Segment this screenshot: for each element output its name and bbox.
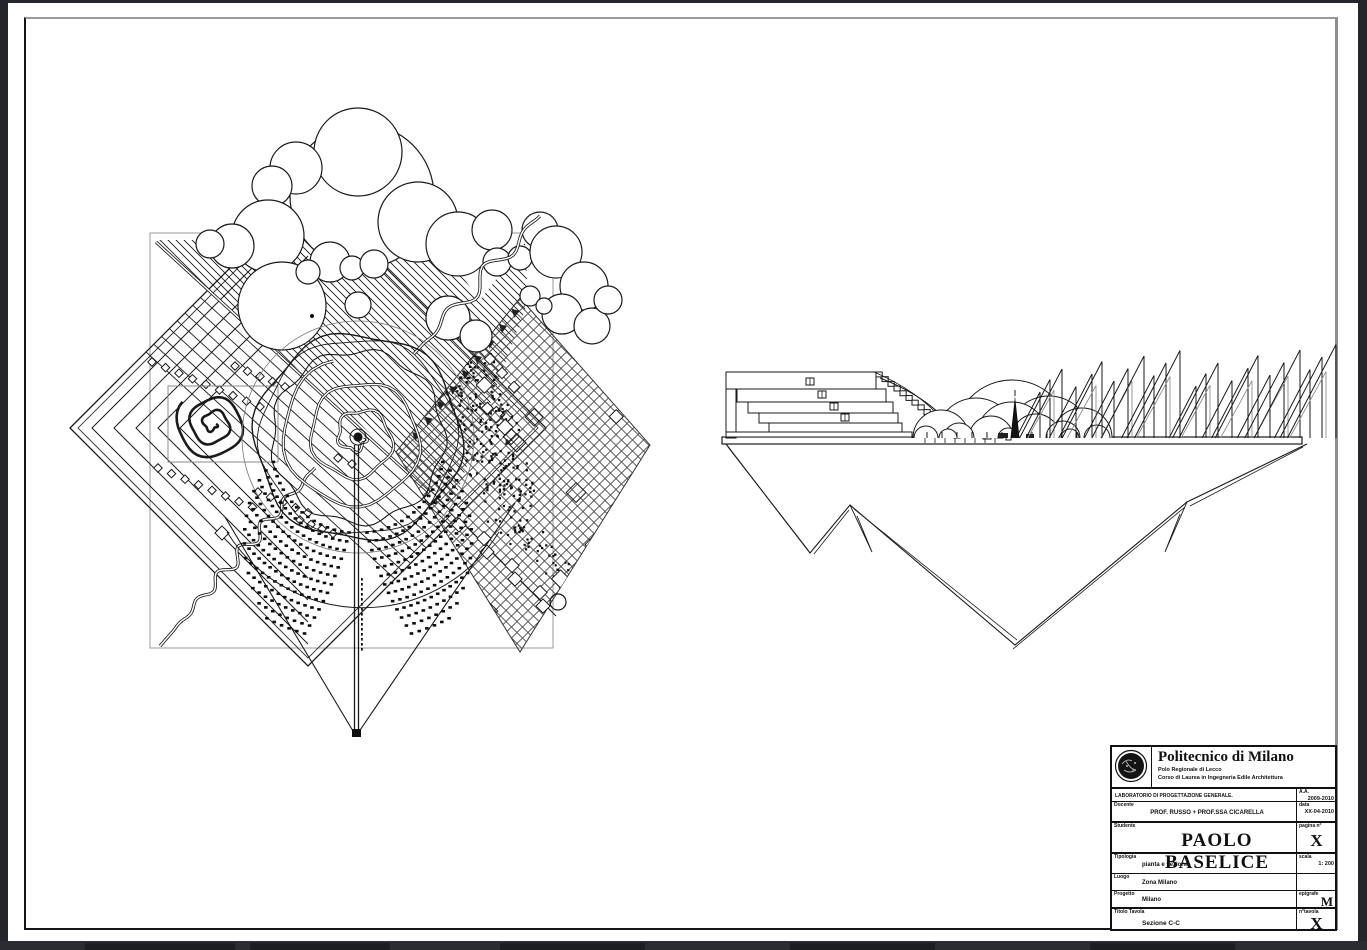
scala-label: scala bbox=[1299, 855, 1312, 860]
right-edge bbox=[1358, 0, 1367, 950]
scala-cell: scala 1: 200 bbox=[1296, 854, 1336, 873]
row-laboratorio: LABORATORIO DI PROGETTAZIONE GENERALE. A… bbox=[1112, 787, 1335, 801]
luogo-label: Luogo bbox=[1114, 875, 1129, 880]
data-label: data bbox=[1299, 803, 1309, 808]
viewer-background: Politecnico di Milano Polo Regionale di … bbox=[0, 0, 1367, 950]
row-docente: Docente PROF. RUSSO + PROF.SSA CICARELLA… bbox=[1112, 801, 1335, 821]
tipologia-label: Tipologia bbox=[1114, 855, 1136, 860]
luogo-value: Zona Milano bbox=[1142, 880, 1177, 886]
epigrafe-label: epigrafe bbox=[1299, 892, 1318, 897]
scala-value: 1: 200 bbox=[1318, 861, 1334, 867]
row-luogo: Luogo Zona Milano bbox=[1112, 873, 1335, 890]
university-name: Politecnico di Milano bbox=[1158, 749, 1294, 766]
left-edge bbox=[0, 0, 8, 950]
titolo-value: Sezione C-C bbox=[1142, 920, 1180, 927]
data-cell: data XX-04-2010 bbox=[1296, 802, 1336, 821]
taskbar-strip bbox=[0, 941, 1367, 950]
aa-label: A.A. bbox=[1299, 790, 1309, 795]
titolo-label: Titolo Tavola bbox=[1114, 910, 1144, 915]
epigrafe-cell: epigrafe M bbox=[1296, 891, 1336, 907]
tipologia-value: pianta e sezione bbox=[1142, 862, 1188, 868]
data-value: XX-04-2010 bbox=[1305, 809, 1334, 815]
empty-cell bbox=[1296, 874, 1336, 890]
docente-label: Docente bbox=[1114, 803, 1134, 808]
aa-cell: A.A. 2009-2010 bbox=[1296, 789, 1336, 801]
ntavola-cell: n°tavola X bbox=[1296, 909, 1336, 931]
docente-value: PROF. RUSSO + PROF.SSA CICARELLA bbox=[1132, 810, 1282, 816]
campus-name: Polo Regionale di Lecco bbox=[1158, 767, 1222, 773]
top-edge bbox=[0, 0, 1367, 3]
title-block-header: Politecnico di Milano Polo Regionale di … bbox=[1112, 747, 1335, 787]
pagina-value: X bbox=[1297, 831, 1336, 851]
row-studente: Studente PAOLO BASELICE pagina n° X bbox=[1112, 821, 1335, 852]
row-progetto: Progetto Milano epigrafe M bbox=[1112, 890, 1335, 907]
politecnico-logo bbox=[1112, 747, 1152, 787]
row-titolo: Titolo Tavola Sezione C-C n°tavola X bbox=[1112, 907, 1335, 931]
row-tipologia: Tipologia pianta e sezione scala 1: 200 bbox=[1112, 852, 1335, 873]
ntavola-value: X bbox=[1297, 914, 1336, 934]
laboratorio-label: LABORATORIO DI PROGETTAZIONE GENERALE. bbox=[1115, 793, 1233, 799]
course-name: Corso di Laurea in Ingegneria Edile Arch… bbox=[1158, 775, 1283, 781]
progetto-label: Progetto bbox=[1114, 892, 1135, 897]
progetto-value: Milano bbox=[1142, 897, 1161, 903]
title-block: Politecnico di Milano Polo Regionale di … bbox=[1110, 745, 1337, 931]
studente-label: Studente bbox=[1114, 824, 1135, 829]
pagina-cell: pagina n° X bbox=[1296, 823, 1336, 852]
pagina-label: pagina n° bbox=[1299, 824, 1322, 829]
